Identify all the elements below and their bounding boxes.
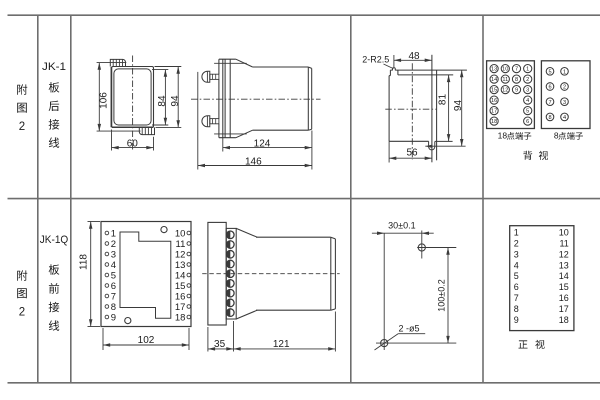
svg-text:8: 8 <box>548 115 551 121</box>
svg-text:9: 9 <box>514 315 519 325</box>
svg-text:15: 15 <box>175 281 186 292</box>
svg-text:7: 7 <box>111 291 116 302</box>
svg-text:JK-1Q: JK-1Q <box>40 234 69 246</box>
svg-text:2: 2 <box>514 239 519 249</box>
svg-text:18: 18 <box>498 131 508 141</box>
svg-text:4: 4 <box>563 115 566 121</box>
svg-text:2: 2 <box>19 121 25 133</box>
svg-text:2 -ø5: 2 -ø5 <box>398 324 419 334</box>
svg-text:2: 2 <box>526 77 529 83</box>
svg-text:5: 5 <box>548 69 551 75</box>
svg-text:17: 17 <box>491 109 497 115</box>
svg-text:7: 7 <box>515 67 518 73</box>
svg-text:15: 15 <box>559 282 569 292</box>
svg-text:13: 13 <box>175 260 186 271</box>
svg-text:1: 1 <box>526 67 529 73</box>
svg-text:18: 18 <box>559 315 569 325</box>
svg-text:3: 3 <box>526 88 529 94</box>
svg-text:10: 10 <box>559 228 569 238</box>
svg-text:5: 5 <box>514 271 519 281</box>
svg-text:18: 18 <box>491 119 497 125</box>
svg-text:15: 15 <box>491 88 497 94</box>
svg-text:6: 6 <box>526 119 529 125</box>
svg-text:3: 3 <box>563 100 566 106</box>
svg-text:124: 124 <box>254 138 271 149</box>
svg-text:6: 6 <box>514 282 519 292</box>
svg-text:5: 5 <box>111 270 116 281</box>
svg-text:1: 1 <box>514 228 519 238</box>
svg-text:2-R2.5: 2-R2.5 <box>362 54 389 64</box>
svg-text:16: 16 <box>559 293 569 303</box>
svg-text:146: 146 <box>245 156 262 167</box>
svg-text:2: 2 <box>111 239 116 250</box>
svg-text:8: 8 <box>554 131 559 141</box>
svg-text:8: 8 <box>111 302 116 313</box>
svg-text:3: 3 <box>111 249 116 260</box>
svg-text:12: 12 <box>175 249 186 260</box>
svg-text:56: 56 <box>406 148 418 159</box>
svg-text:9: 9 <box>111 312 116 323</box>
svg-text:100±0.2: 100±0.2 <box>437 279 447 311</box>
svg-text:1: 1 <box>563 69 566 75</box>
svg-text:11: 11 <box>502 77 508 83</box>
svg-text:35: 35 <box>214 339 226 350</box>
svg-text:94: 94 <box>170 95 181 107</box>
svg-text:1: 1 <box>111 228 116 239</box>
svg-text:18: 18 <box>175 312 186 323</box>
svg-text:10: 10 <box>175 228 186 239</box>
svg-text:12: 12 <box>502 88 508 94</box>
svg-text:8: 8 <box>514 304 519 314</box>
svg-text:84: 84 <box>157 95 168 107</box>
svg-text:14: 14 <box>559 271 569 281</box>
svg-text:3: 3 <box>514 249 519 259</box>
svg-text:14: 14 <box>491 77 497 83</box>
svg-text:16: 16 <box>175 291 186 302</box>
svg-text:17: 17 <box>559 304 569 314</box>
svg-text:JK-1: JK-1 <box>42 61 66 73</box>
svg-text:13: 13 <box>559 260 569 270</box>
svg-text:9: 9 <box>515 88 518 94</box>
svg-text:94: 94 <box>453 100 464 112</box>
svg-text:2: 2 <box>19 307 25 319</box>
svg-text:48: 48 <box>408 51 420 62</box>
svg-text:16: 16 <box>491 98 497 104</box>
svg-text:6: 6 <box>548 85 551 91</box>
svg-text:5: 5 <box>526 109 529 115</box>
svg-text:17: 17 <box>175 302 186 313</box>
svg-text:30±0.1: 30±0.1 <box>388 221 415 231</box>
svg-text:14: 14 <box>175 270 186 281</box>
svg-text:81: 81 <box>437 94 448 106</box>
svg-text:13: 13 <box>491 67 497 73</box>
svg-text:6: 6 <box>111 281 116 292</box>
svg-text:11: 11 <box>559 239 568 249</box>
svg-text:7: 7 <box>548 100 551 106</box>
svg-text:60: 60 <box>127 138 139 149</box>
svg-text:7: 7 <box>514 293 519 303</box>
svg-text:12: 12 <box>559 249 569 259</box>
svg-text:10: 10 <box>502 67 508 73</box>
svg-text:102: 102 <box>138 335 155 346</box>
svg-text:4: 4 <box>514 260 519 270</box>
svg-text:121: 121 <box>273 339 290 350</box>
svg-text:118: 118 <box>78 254 89 270</box>
svg-text:4: 4 <box>526 98 529 104</box>
svg-text:106: 106 <box>99 92 110 109</box>
svg-text:8: 8 <box>515 77 518 83</box>
svg-text:11: 11 <box>176 239 186 250</box>
svg-text:4: 4 <box>111 260 116 271</box>
svg-text:2: 2 <box>563 85 566 91</box>
